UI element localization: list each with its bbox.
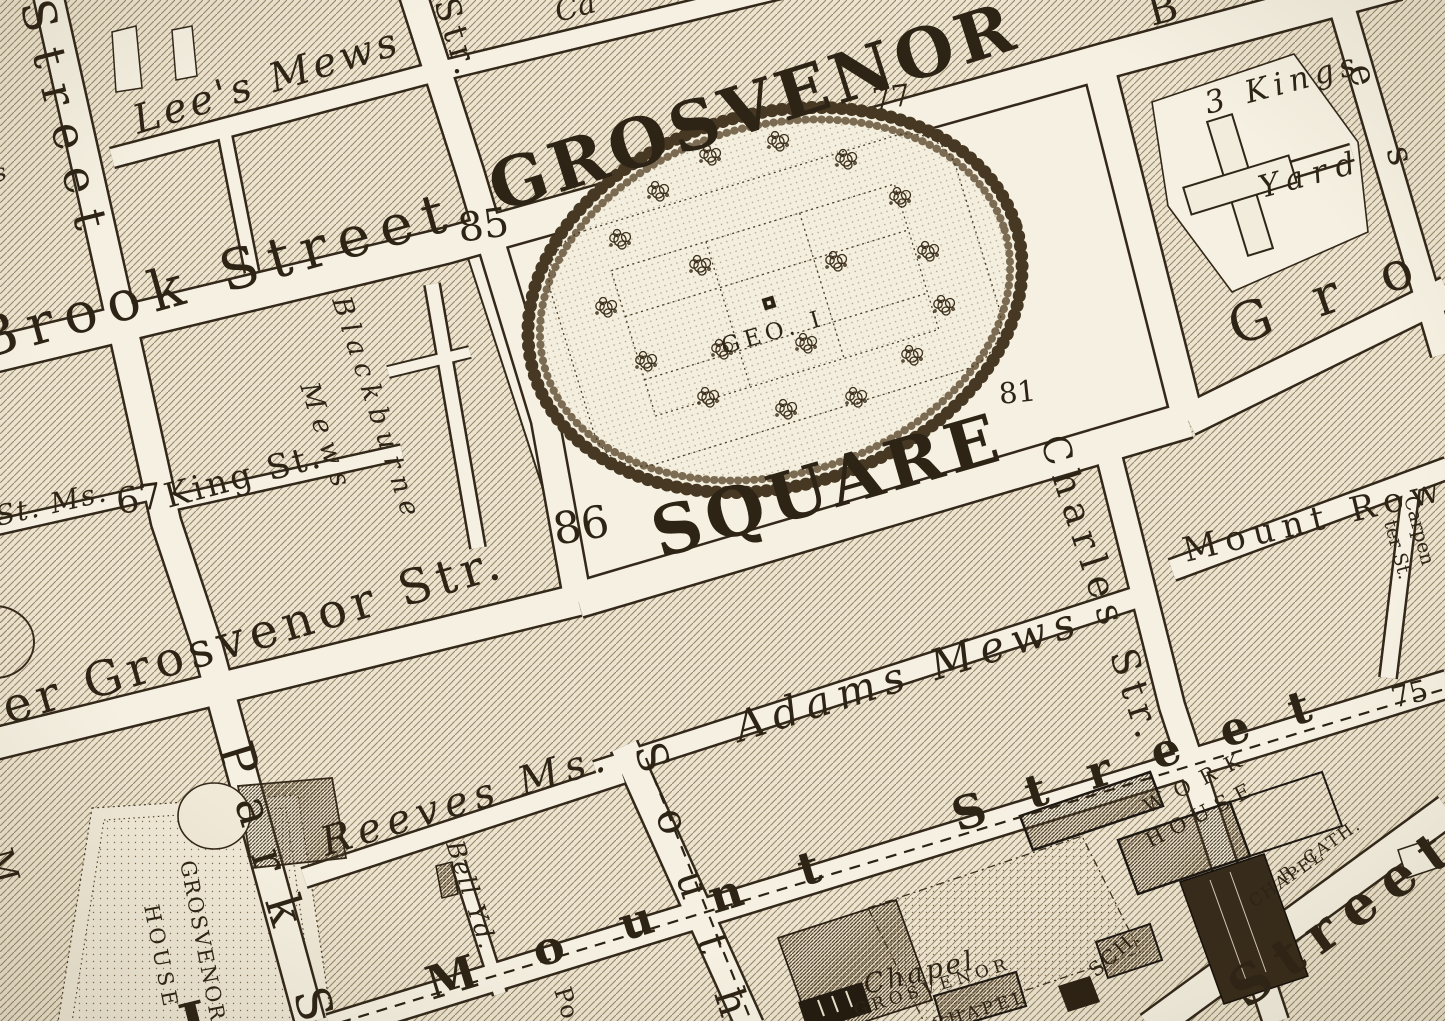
map-canvas: GROSVENORSQUAREGEO. I857781866775Brook S… xyxy=(0,0,1445,1021)
map-stage: GROSVENORSQUAREGEO. I857781866775Brook S… xyxy=(0,0,1445,1021)
paper-vignette xyxy=(0,0,1445,1021)
